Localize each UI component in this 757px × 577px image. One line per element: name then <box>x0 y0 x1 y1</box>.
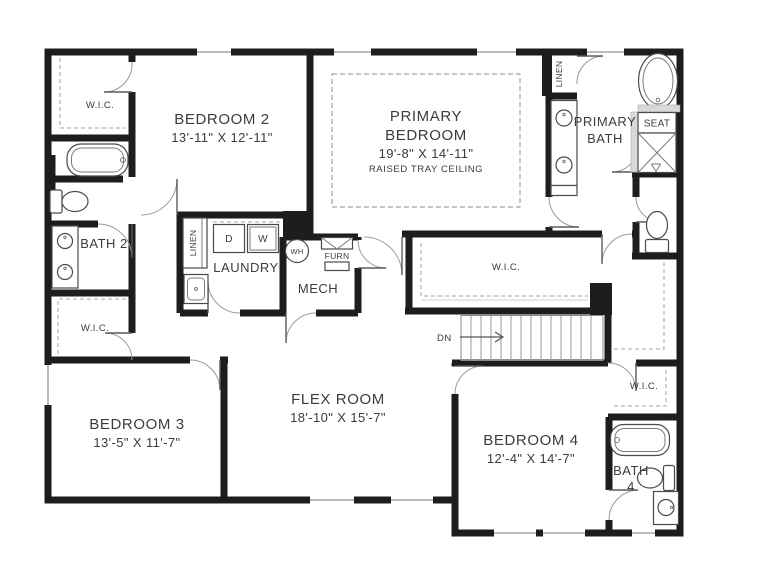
bedroom4-dims: 12'-4" X 14'-7" <box>487 451 575 466</box>
laundry-linen-label: LINEN <box>188 230 198 257</box>
bath2-label: BATH 2 <box>80 236 128 251</box>
primary-bedroom-note: RAISED TRAY CEILING <box>369 164 483 175</box>
water-heater-label: WH <box>291 247 304 256</box>
primary-linen-label: LINEN <box>554 61 564 88</box>
wall-block <box>283 211 310 237</box>
floor-plan: W.I.C. BEDROOM 2 13'-11" X 12'-11" PRIMA… <box>0 0 757 577</box>
primary-bath-label-2: BATH <box>587 131 623 146</box>
bath2-vanity <box>52 226 78 288</box>
bath4-tub <box>611 425 670 456</box>
flex-room-dims: 18'-10" X 15'-7" <box>290 410 386 425</box>
laundry-sink <box>184 275 208 304</box>
bedroom3-label: BEDROOM 3 <box>89 416 184 433</box>
primary-bedroom-dims: 19'-8" X 14'-11" <box>379 146 474 161</box>
bedroom3-dims: 13'-5" X 11'-7" <box>93 435 180 450</box>
stairs-dn-label: DN <box>437 333 452 344</box>
bath2-tub <box>67 144 128 176</box>
wic-bedroom4-label: W.I.C. <box>630 381 658 392</box>
flex-room-label: FLEX ROOM <box>291 391 385 408</box>
bath4-label-1: BATH <box>613 463 649 478</box>
wall-block <box>542 49 552 96</box>
laundry-label: LAUNDRY <box>213 260 278 275</box>
wic-left-label: W.I.C. <box>81 323 109 334</box>
bath4-label-2: 4 <box>627 479 635 494</box>
primary-bedroom-label-1: PRIMARY <box>390 108 462 125</box>
bedroom2-dims: 13'-11" X 12'-11" <box>171 130 272 145</box>
bath2-toilet <box>50 190 88 213</box>
primary-bath-label-1: PRIMARY <box>574 114 637 129</box>
primary-wic-label: W.I.C. <box>492 262 520 273</box>
shower-seat-label: SEAT <box>644 119 671 130</box>
dryer-label: D <box>225 234 233 245</box>
staircase <box>460 316 603 361</box>
wic-top-left-label: W.I.C. <box>86 100 114 111</box>
bath4-vanity <box>654 492 679 525</box>
washer-label: W <box>258 234 268 245</box>
furnace-label: FURN <box>325 251 350 261</box>
primary-toilet <box>646 212 669 253</box>
wall-block <box>590 283 612 315</box>
primary-bedroom-label-2: BEDROOM <box>385 127 467 144</box>
bedroom2-label: BEDROOM 2 <box>174 111 269 128</box>
mech-label: MECH <box>298 281 338 296</box>
floor-plan-drawing: W.I.C. BEDROOM 2 13'-11" X 12'-11" PRIMA… <box>0 0 757 577</box>
bedroom4-label: BEDROOM 4 <box>483 432 578 449</box>
